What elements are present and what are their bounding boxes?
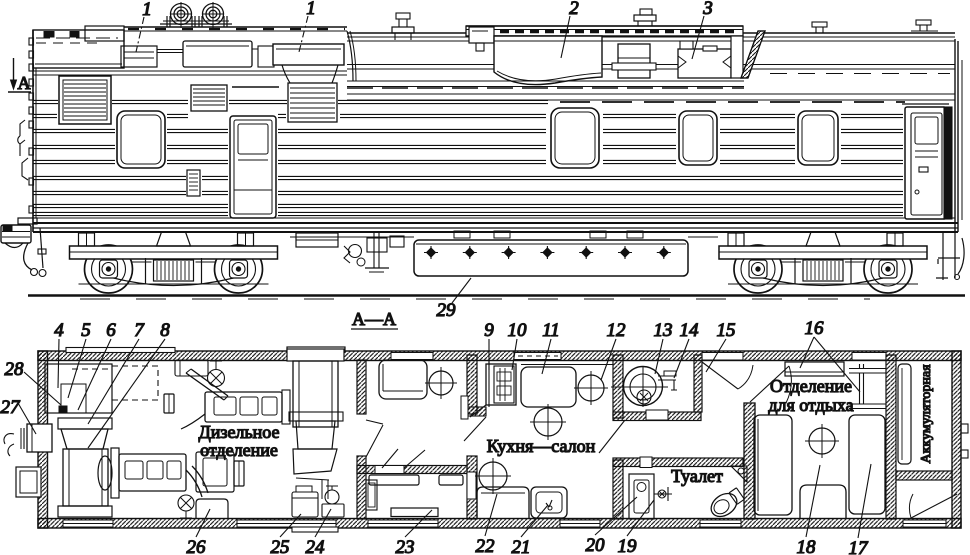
svg-text:13: 13	[654, 320, 673, 341]
svg-text:29: 29	[437, 300, 457, 321]
svg-text:15: 15	[717, 320, 736, 341]
svg-text:Дизельное: Дизельное	[198, 422, 279, 442]
svg-text:27: 27	[1, 397, 22, 418]
svg-text:23: 23	[396, 537, 415, 555]
svg-text:25: 25	[271, 537, 290, 555]
svg-text:Отделение: Отделение	[770, 376, 852, 396]
svg-text:4: 4	[54, 320, 64, 341]
svg-text:17: 17	[849, 538, 870, 555]
svg-text:8: 8	[160, 320, 170, 341]
svg-text:5: 5	[81, 320, 91, 341]
svg-text:2: 2	[569, 0, 579, 19]
svg-text:19: 19	[618, 536, 638, 555]
svg-text:16: 16	[805, 318, 825, 339]
svg-text:14: 14	[680, 320, 700, 341]
svg-text:28: 28	[5, 359, 25, 380]
svg-text:9: 9	[484, 320, 494, 341]
svg-text:Кухня—салон: Кухня—салон	[487, 436, 596, 456]
svg-text:22: 22	[476, 536, 496, 555]
svg-text:7: 7	[134, 320, 145, 341]
svg-text:26: 26	[187, 537, 207, 555]
svg-text:отделение: отделение	[200, 440, 278, 460]
svg-text:Аккумуляторная: Аккумуляторная	[919, 364, 934, 464]
svg-text:12: 12	[607, 320, 627, 341]
svg-text:для отдыха: для отдыха	[768, 395, 853, 415]
svg-text:11: 11	[542, 320, 560, 341]
svg-text:18: 18	[797, 537, 817, 555]
svg-text:20: 20	[586, 535, 606, 555]
svg-text:24: 24	[306, 537, 326, 555]
svg-text:10: 10	[508, 320, 528, 341]
svg-text:21: 21	[512, 537, 531, 555]
svg-text:А—А: А—А	[352, 309, 396, 329]
svg-text:Туалет: Туалет	[671, 466, 723, 486]
svg-text:6: 6	[106, 320, 116, 341]
